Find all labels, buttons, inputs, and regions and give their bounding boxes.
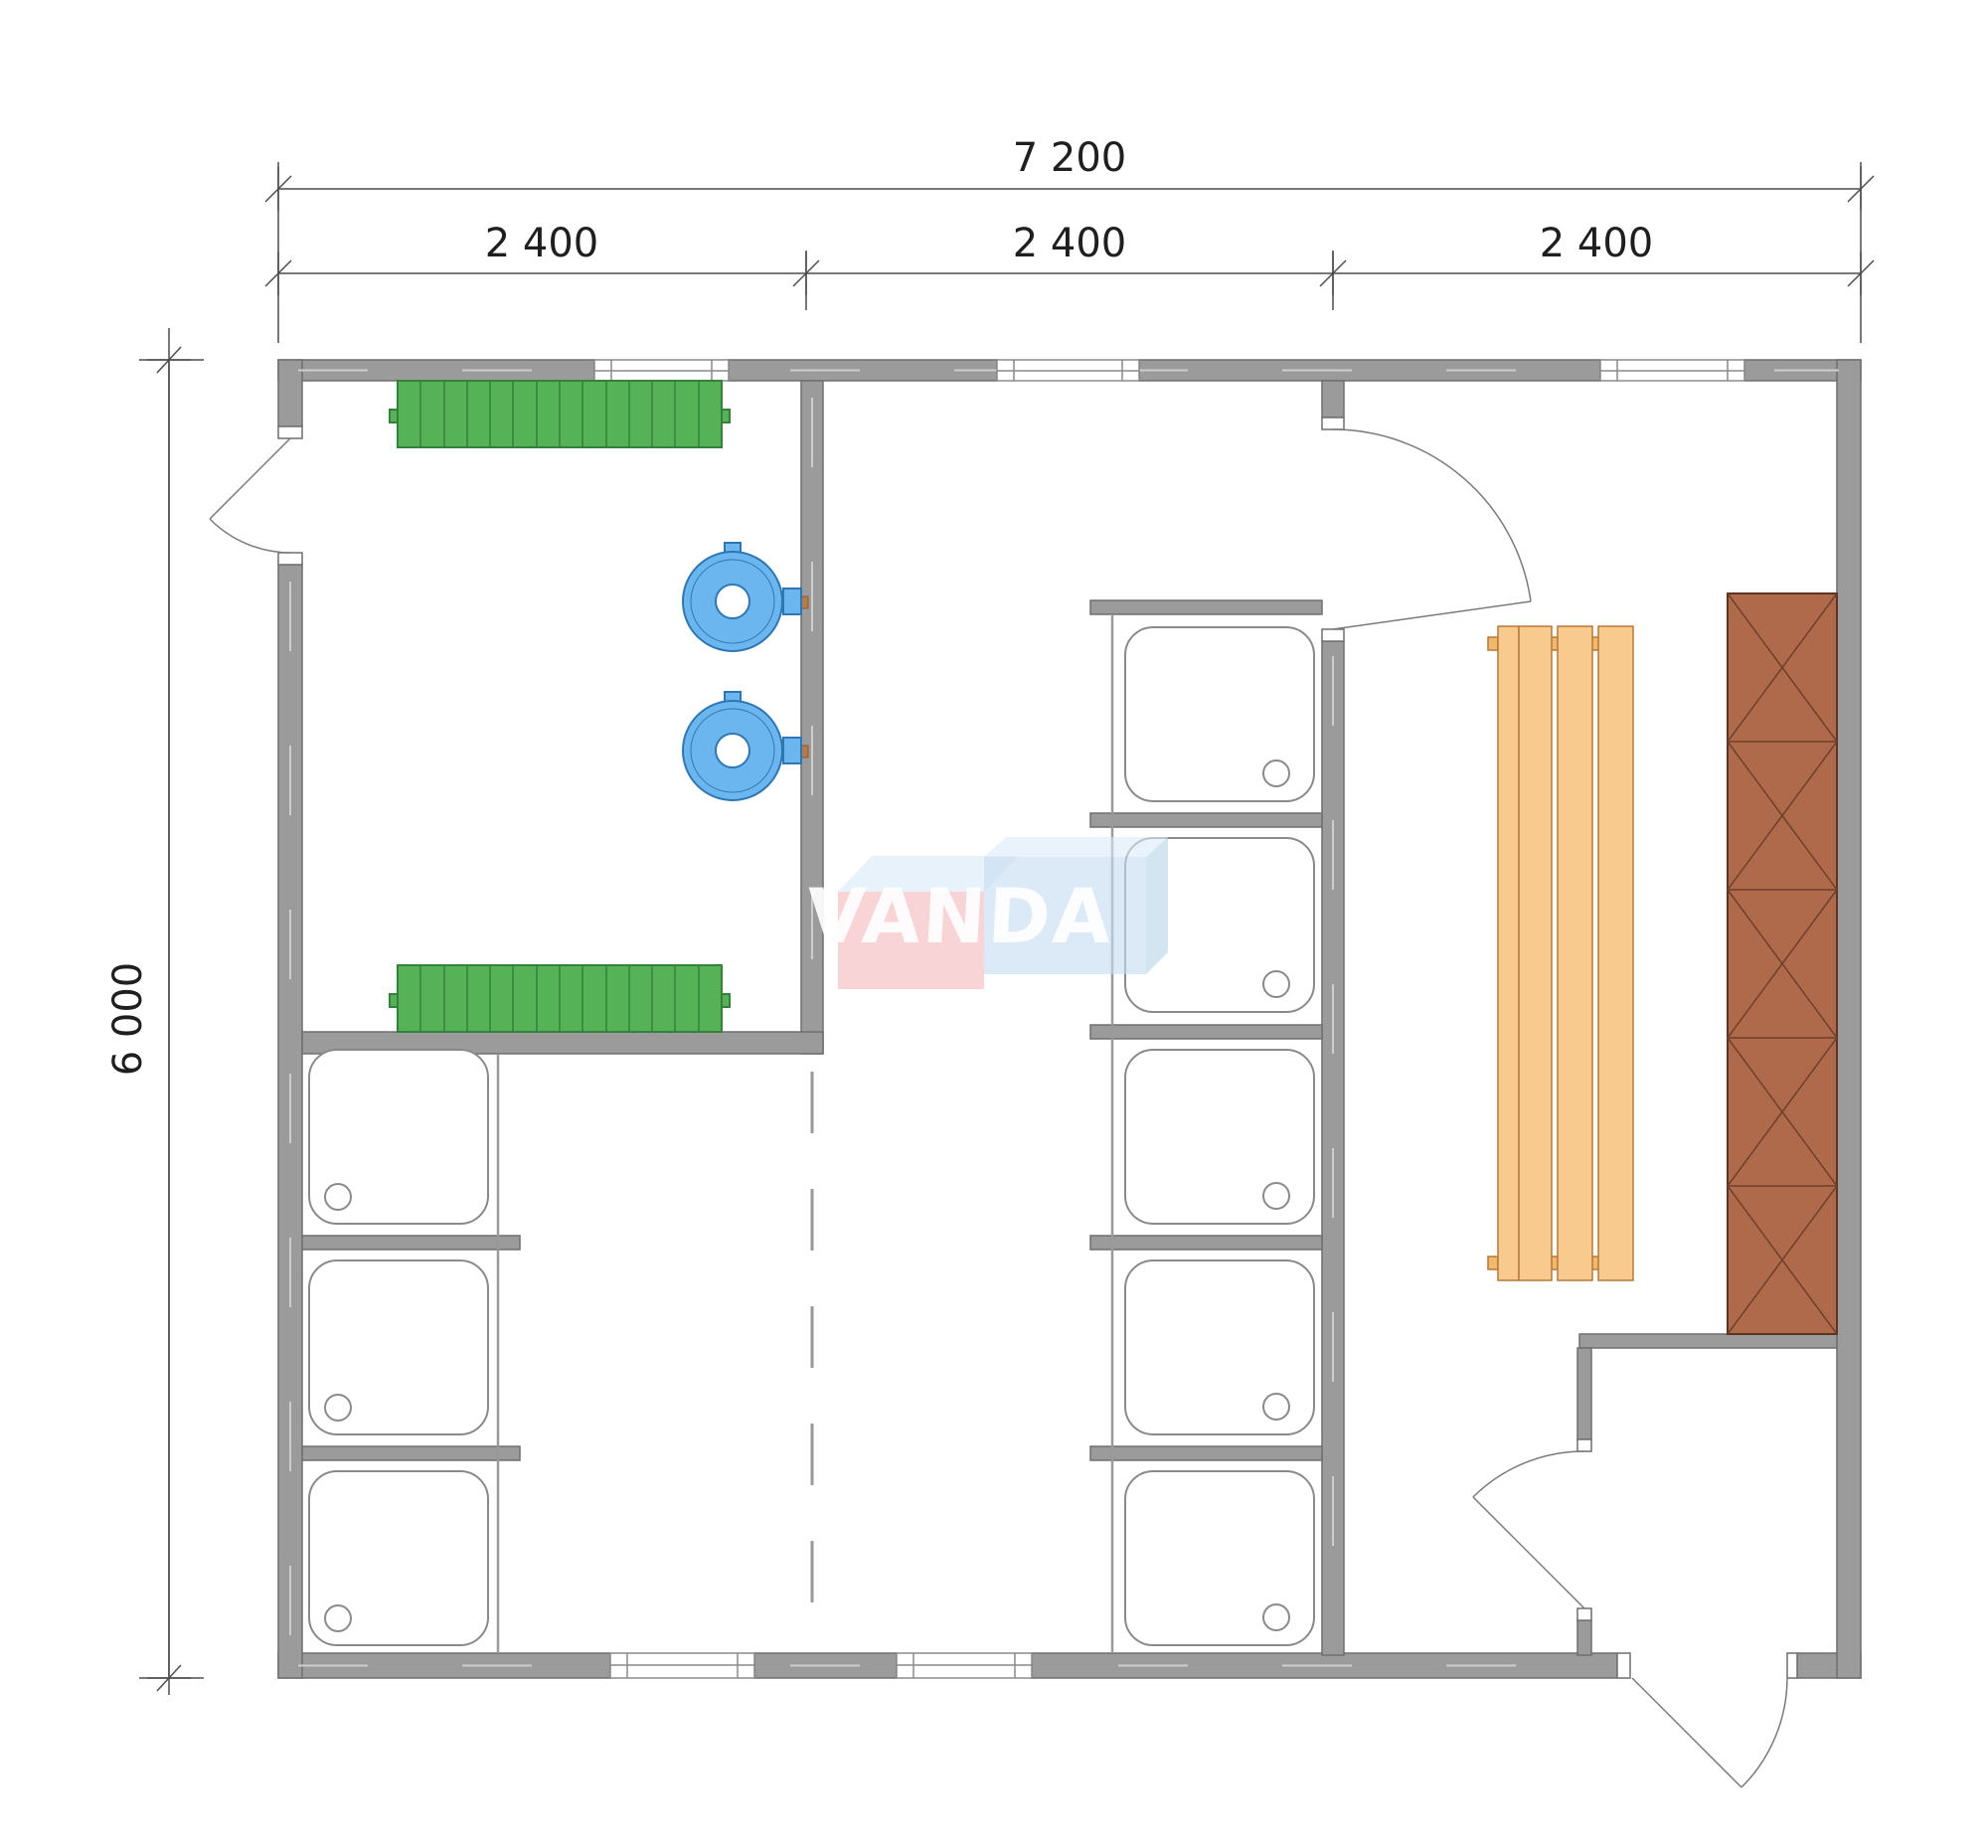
window-top-3	[1600, 360, 1744, 381]
dimension-label-total-height: 6 000	[105, 962, 151, 1077]
shower-tray	[309, 1260, 488, 1434]
dimension-label-total-width: 7 200	[1013, 135, 1127, 181]
wall-vestibule-left-a	[1577, 1348, 1591, 1439]
window-top-2	[997, 360, 1139, 381]
shower-tray	[1125, 1050, 1314, 1224]
door-exterior-bottom-right	[1632, 1678, 1787, 1787]
dimension-label-segment-2: 2 400	[1013, 221, 1127, 266]
wall-sauna-divider-stub	[1322, 381, 1344, 418]
washbasin-2	[683, 692, 808, 800]
shower-tray	[1125, 1260, 1314, 1434]
floor-plan-page: 7 200 2 400 2 400 2 400 6 000	[0, 0, 1988, 1848]
door-sauna	[1333, 429, 1531, 629]
dimension-label-segment-3: 2 400	[1540, 221, 1654, 266]
logo-blue-top-face	[984, 837, 1168, 857]
window-bottom-2	[897, 1653, 1032, 1678]
shower-tray	[1125, 627, 1314, 801]
dimension-label-segment-1: 2 400	[485, 221, 599, 266]
window-top-1	[594, 360, 729, 381]
floor-plan-canvas: 7 200 2 400 2 400 2 400 6 000	[0, 0, 1988, 1848]
shower-tray	[309, 1471, 488, 1645]
radiator-bottom	[390, 965, 730, 1032]
basin-drain-icon	[716, 585, 749, 618]
logo-text: VANDA	[804, 872, 1115, 960]
door-vestibule	[1473, 1451, 1584, 1608]
radiator-top	[390, 381, 730, 447]
door-exterior-left	[210, 438, 290, 553]
window-bottom-1	[610, 1653, 754, 1678]
washbasin-1	[683, 543, 808, 651]
basin-drain-icon	[716, 734, 749, 767]
shower-column-left	[309, 1050, 488, 1645]
sauna-bench	[1488, 626, 1633, 1280]
dimension-left-total	[147, 347, 191, 1691]
shower-column-middle	[1125, 627, 1314, 1645]
sauna-stove	[1728, 593, 1837, 1334]
shower-tray	[309, 1050, 488, 1224]
vanda-watermark: VANDA	[804, 837, 1168, 989]
logo-blue-side-face	[1146, 837, 1168, 974]
wall-vestibule-left-b	[1577, 1620, 1591, 1655]
wall-vestibule-top	[1579, 1334, 1837, 1348]
shower-tray	[1125, 1471, 1314, 1645]
